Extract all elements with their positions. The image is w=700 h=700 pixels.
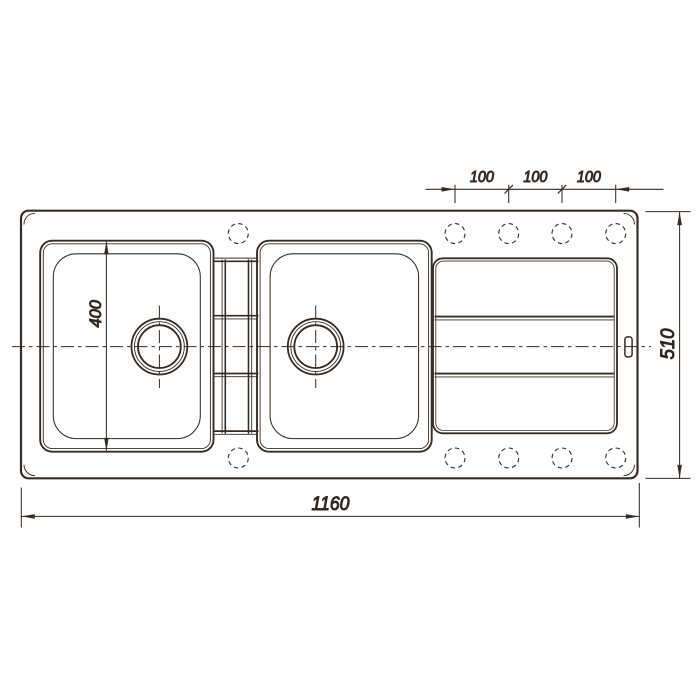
arrowhead-left bbox=[21, 514, 35, 519]
faucet-hole bbox=[228, 224, 248, 244]
faucet-hole bbox=[445, 448, 465, 468]
faucet-hole bbox=[552, 448, 572, 468]
dimension-label-depth: 510 bbox=[658, 328, 679, 359]
faucet-hole bbox=[606, 448, 626, 468]
corner-accent-bottom-right bbox=[624, 465, 635, 476]
arrowhead-down bbox=[677, 465, 682, 479]
corner-accent-top-left bbox=[24, 213, 35, 224]
dimension-label-spacing-1: 100 bbox=[470, 169, 494, 186]
faucet-hole bbox=[445, 224, 465, 244]
drainboard-edge-inner bbox=[436, 261, 614, 430]
dimension-label-width: 1160 bbox=[312, 493, 350, 515]
faucet-hole bbox=[499, 448, 519, 468]
faucet-hole bbox=[228, 448, 248, 468]
dimension-label-spacing-3: 100 bbox=[577, 169, 601, 186]
corner-accent-top-right bbox=[624, 213, 635, 224]
drainboard bbox=[433, 258, 617, 433]
sink-dimension-drawing: 400 100 100 100 510 bbox=[0, 0, 700, 700]
centerlines bbox=[12, 306, 651, 389]
arrowhead-up bbox=[677, 212, 682, 226]
arrowhead-up bbox=[104, 241, 109, 254]
drainboard-edge-outer bbox=[433, 258, 617, 433]
technical-drawing-canvas: 400 100 100 100 510 bbox=[0, 0, 700, 700]
arrowhead-left bbox=[616, 187, 630, 192]
faucet-hole bbox=[552, 224, 572, 244]
arrowhead-down bbox=[104, 438, 109, 451]
arrowhead-right bbox=[626, 514, 640, 519]
faucet-hole bbox=[499, 224, 519, 244]
faucet-hole bbox=[606, 224, 626, 244]
dimension-label-spacing-2: 100 bbox=[523, 169, 547, 186]
dimension-label-bowl: 400 bbox=[86, 300, 105, 328]
corner-accent-bottom-left bbox=[24, 465, 35, 476]
dimension-hole-spacing bbox=[426, 185, 664, 203]
arrowhead-right bbox=[442, 187, 456, 192]
